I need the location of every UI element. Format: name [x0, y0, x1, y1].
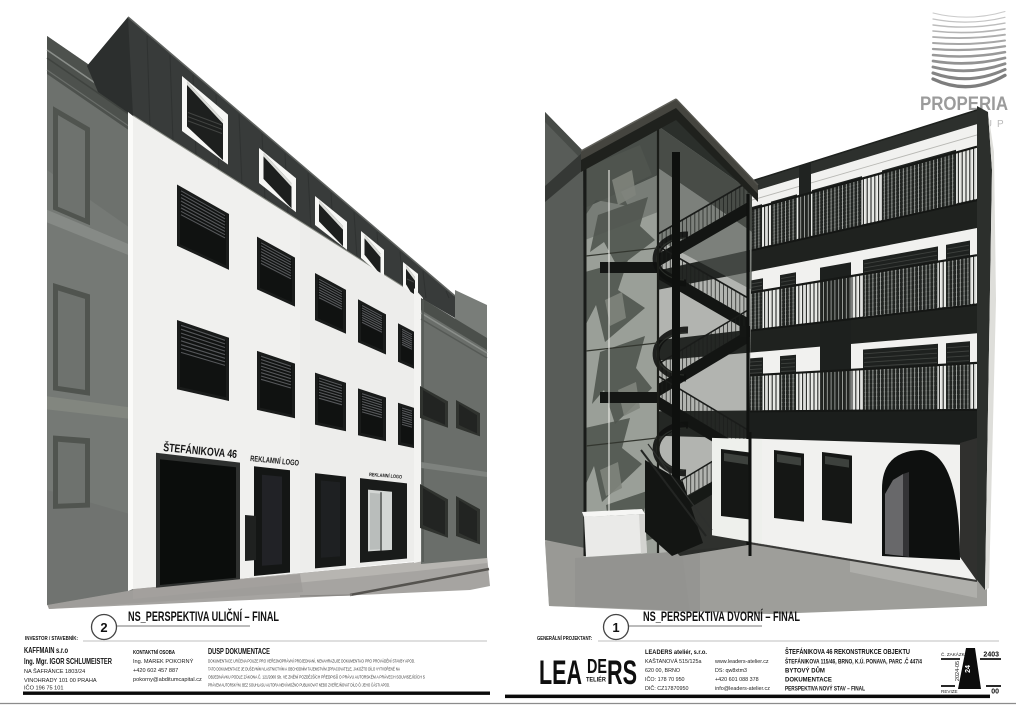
svg-text:DOKUMENTACE URČENA POUZE PRO V: DOKUMENTACE URČENA POUZE PRO VEŘEJNOPRÁV…: [208, 659, 415, 664]
svg-text:OBJEDNÁVKU PODLE ZÁKONA Č. 121: OBJEDNÁVKU PODLE ZÁKONA Č. 121/2000 Sb. …: [208, 675, 425, 680]
svg-text:www.leaders-atelier.cz: www.leaders-atelier.cz: [714, 659, 769, 665]
svg-text:BYTOVÝ DŮM: BYTOVÝ DŮM: [785, 667, 825, 675]
svg-text:TELIÉR: TELIÉR: [586, 675, 606, 684]
svg-text:NS_PERSPEKTIVA ULIČNÍ – FINAL: NS_PERSPEKTIVA ULIČNÍ – FINAL: [128, 609, 279, 624]
svg-text:24: 24: [965, 665, 972, 673]
svg-text:NS_PERSPEKTIVA DVORNÍ – FINAL: NS_PERSPEKTIVA DVORNÍ – FINAL: [643, 609, 800, 624]
svg-text:PRÁVEM AUTORSKÝM. BEZ SOUHLASU: PRÁVEM AUTORSKÝM. BEZ SOUHLASU AUTORA NE…: [208, 683, 390, 688]
svg-text:LEA: LEA: [539, 654, 582, 692]
svg-text:KAFFMAIN s.r.o: KAFFMAIN s.r.o: [24, 646, 68, 655]
svg-text:DOKUMENTACE: DOKUMENTACE: [785, 678, 832, 684]
svg-text:Ing. Mgr. IGOR SCHLUMEISTER: Ing. Mgr. IGOR SCHLUMEISTER: [24, 657, 112, 666]
svg-text:pokorny@abditumcapital.cz: pokorny@abditumcapital.cz: [133, 677, 202, 683]
svg-text:2403: 2403: [983, 652, 999, 659]
svg-text:LEADERS ateliér, s.r.o.: LEADERS ateliér, s.r.o.: [645, 649, 707, 656]
svg-text:PERSPEKTIVA NOVÝ STAV – FINAL: PERSPEKTIVA NOVÝ STAV – FINAL: [785, 686, 865, 693]
svg-text:info@leaders-atelier.cz: info@leaders-atelier.cz: [715, 686, 770, 692]
svg-text:Ing. MAREK POKORNÝ: Ing. MAREK POKORNÝ: [133, 658, 194, 665]
svg-text:1: 1: [612, 620, 619, 635]
svg-text:TATO DOKUMENTACE JE DUŠEVNÍM V: TATO DOKUMENTACE JE DUŠEVNÍM VLASTNICTVÍ…: [208, 667, 400, 672]
svg-text:DE: DE: [587, 656, 607, 678]
svg-text:+420 601 088 378: +420 601 088 378: [715, 677, 759, 683]
svg-text:NA ŠAFRÁNCE 1803/24: NA ŠAFRÁNCE 1803/24: [24, 668, 85, 675]
svg-text:DUSP DOKUMENTACE: DUSP DOKUMENTACE: [208, 647, 270, 656]
svg-text:ŠTEFÁNIKOVA 46 REKONSTRUKCE OB: ŠTEFÁNIKOVA 46 REKONSTRUKCE OBJEKTU: [785, 647, 910, 656]
svg-text:GENERÁLNÍ PROJEKTANT:: GENERÁLNÍ PROJEKTANT:: [537, 634, 592, 642]
svg-text:2024-05: 2024-05: [955, 661, 961, 681]
svg-text:IČO: 178 70 950: IČO: 178 70 950: [645, 676, 685, 683]
svg-text:KONTAKTNÍ OSOBA: KONTAKTNÍ OSOBA: [133, 648, 176, 656]
svg-text:INVESTOR / STAVEBNÍK:: INVESTOR / STAVEBNÍK:: [25, 634, 78, 642]
svg-text:DS: qw8xtm3: DS: qw8xtm3: [715, 668, 747, 674]
svg-text:KAŠTANOVÁ 515/125a: KAŠTANOVÁ 515/125a: [645, 658, 702, 665]
svg-text:ŠTEFÁNIKOVA 115/46, BRNO, K.Ú.: ŠTEFÁNIKOVA 115/46, BRNO, K.Ú. PONAVA, P…: [785, 658, 923, 666]
svg-text:VINOHRADY 101 00 PRAHA: VINOHRADY 101 00 PRAHA: [24, 678, 97, 684]
svg-text:+420 602 457 887: +420 602 457 887: [133, 668, 178, 674]
svg-text:2: 2: [100, 620, 107, 635]
svg-text:620 00, BRNO: 620 00, BRNO: [645, 668, 680, 674]
svg-text:00: 00: [991, 689, 999, 696]
svg-text:IČO 196 75 101: IČO 196 75 101: [24, 685, 64, 692]
svg-text:REVIZE: REVIZE: [941, 689, 958, 694]
svg-text:PROPERIA: PROPERIA: [920, 94, 1008, 115]
svg-text:DIČ: CZ17870950: DIČ: CZ17870950: [645, 685, 688, 692]
svg-text:RS: RS: [607, 654, 637, 692]
svg-text:Č. ZAKÁZKY: Č. ZAKÁZKY: [941, 651, 968, 657]
